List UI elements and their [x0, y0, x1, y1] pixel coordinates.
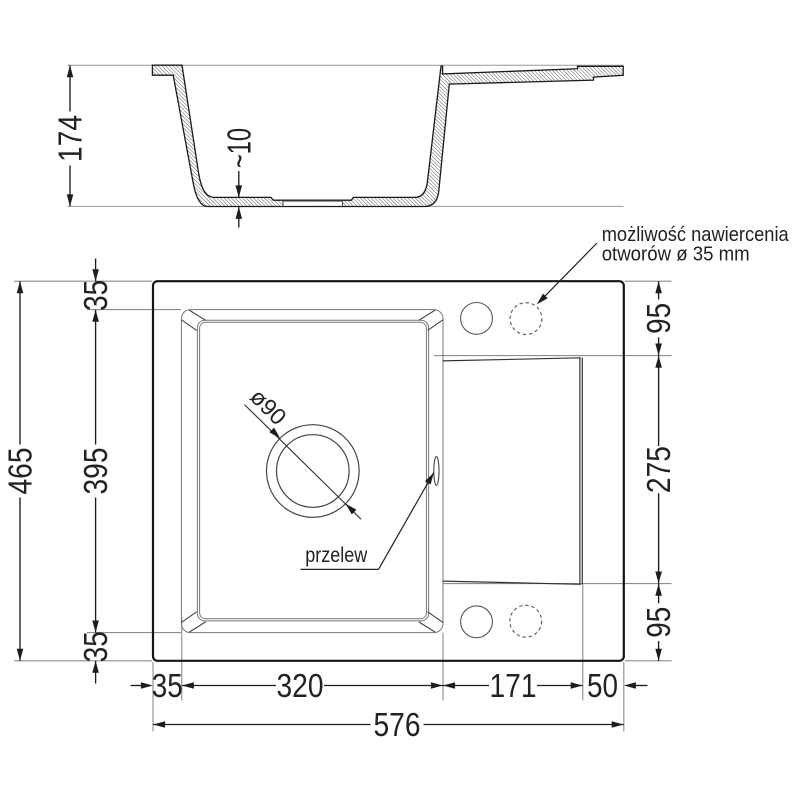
svg-text:275: 275 [640, 446, 677, 493]
svg-text:35: 35 [152, 667, 183, 704]
svg-text:35: 35 [77, 280, 114, 311]
svg-text:171: 171 [490, 667, 537, 704]
svg-text:95: 95 [640, 607, 677, 638]
svg-text:95: 95 [640, 303, 677, 334]
svg-text:576: 576 [374, 706, 421, 743]
svg-text:465: 465 [2, 448, 39, 495]
svg-text:przelew: przelew [305, 544, 368, 567]
svg-text:otworów ø 35 mm: otworów ø 35 mm [602, 243, 750, 265]
svg-text:320: 320 [277, 667, 324, 704]
svg-text:~10: ~10 [220, 128, 257, 168]
svg-text:35: 35 [77, 631, 114, 662]
svg-text:50: 50 [587, 667, 618, 704]
svg-text:174: 174 [52, 115, 89, 162]
svg-text:395: 395 [77, 448, 114, 495]
